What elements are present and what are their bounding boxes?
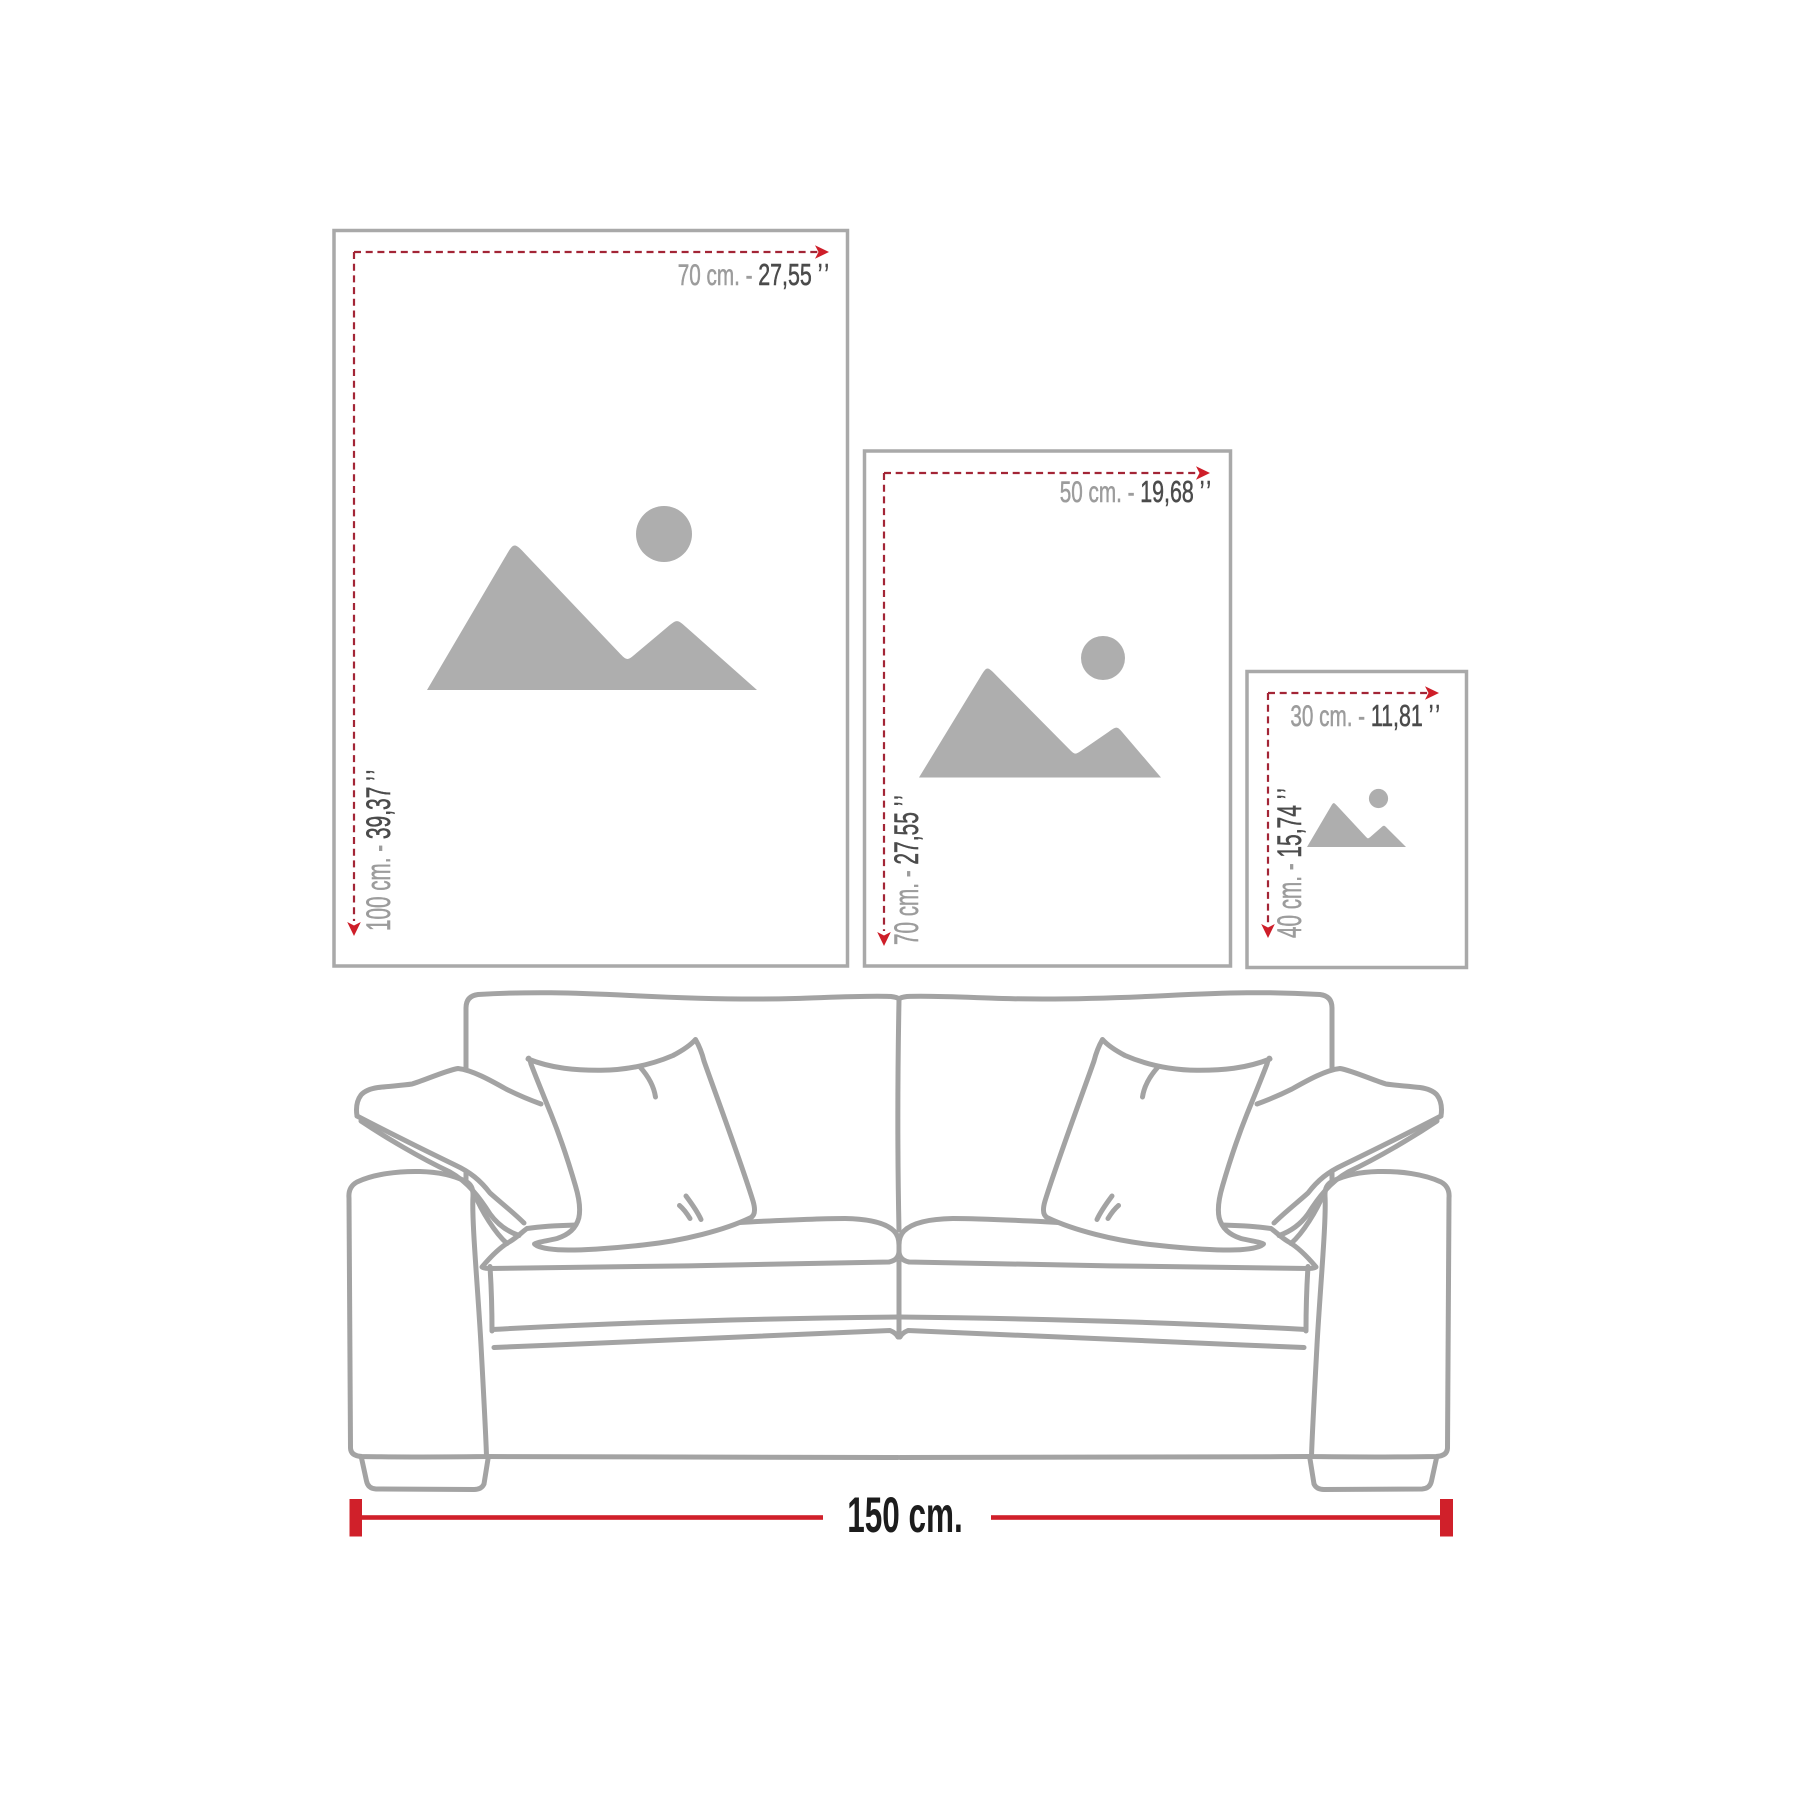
svg-text:30 cm. - 11,81 ’ ’: 30 cm. - 11,81 ’ ’ xyxy=(1290,698,1440,733)
svg-text:50 cm. - 19,68 ’ ’: 50 cm. - 19,68 ’ ’ xyxy=(1060,474,1211,509)
svg-text:150 cm.: 150 cm. xyxy=(847,1487,963,1543)
svg-text:40 cm. - 15,74 ’ ’: 40 cm. - 15,74 ’ ’ xyxy=(1271,788,1310,938)
svg-text:70 cm. - 27,55 ’ ’: 70 cm. - 27,55 ’ ’ xyxy=(678,257,829,292)
svg-text:100 cm. - 39,37 ’ ’: 100 cm. - 39,37 ’ ’ xyxy=(360,770,399,931)
svg-text:70 cm. - 27,55 ’ ’: 70 cm. - 27,55 ’ ’ xyxy=(888,795,927,945)
